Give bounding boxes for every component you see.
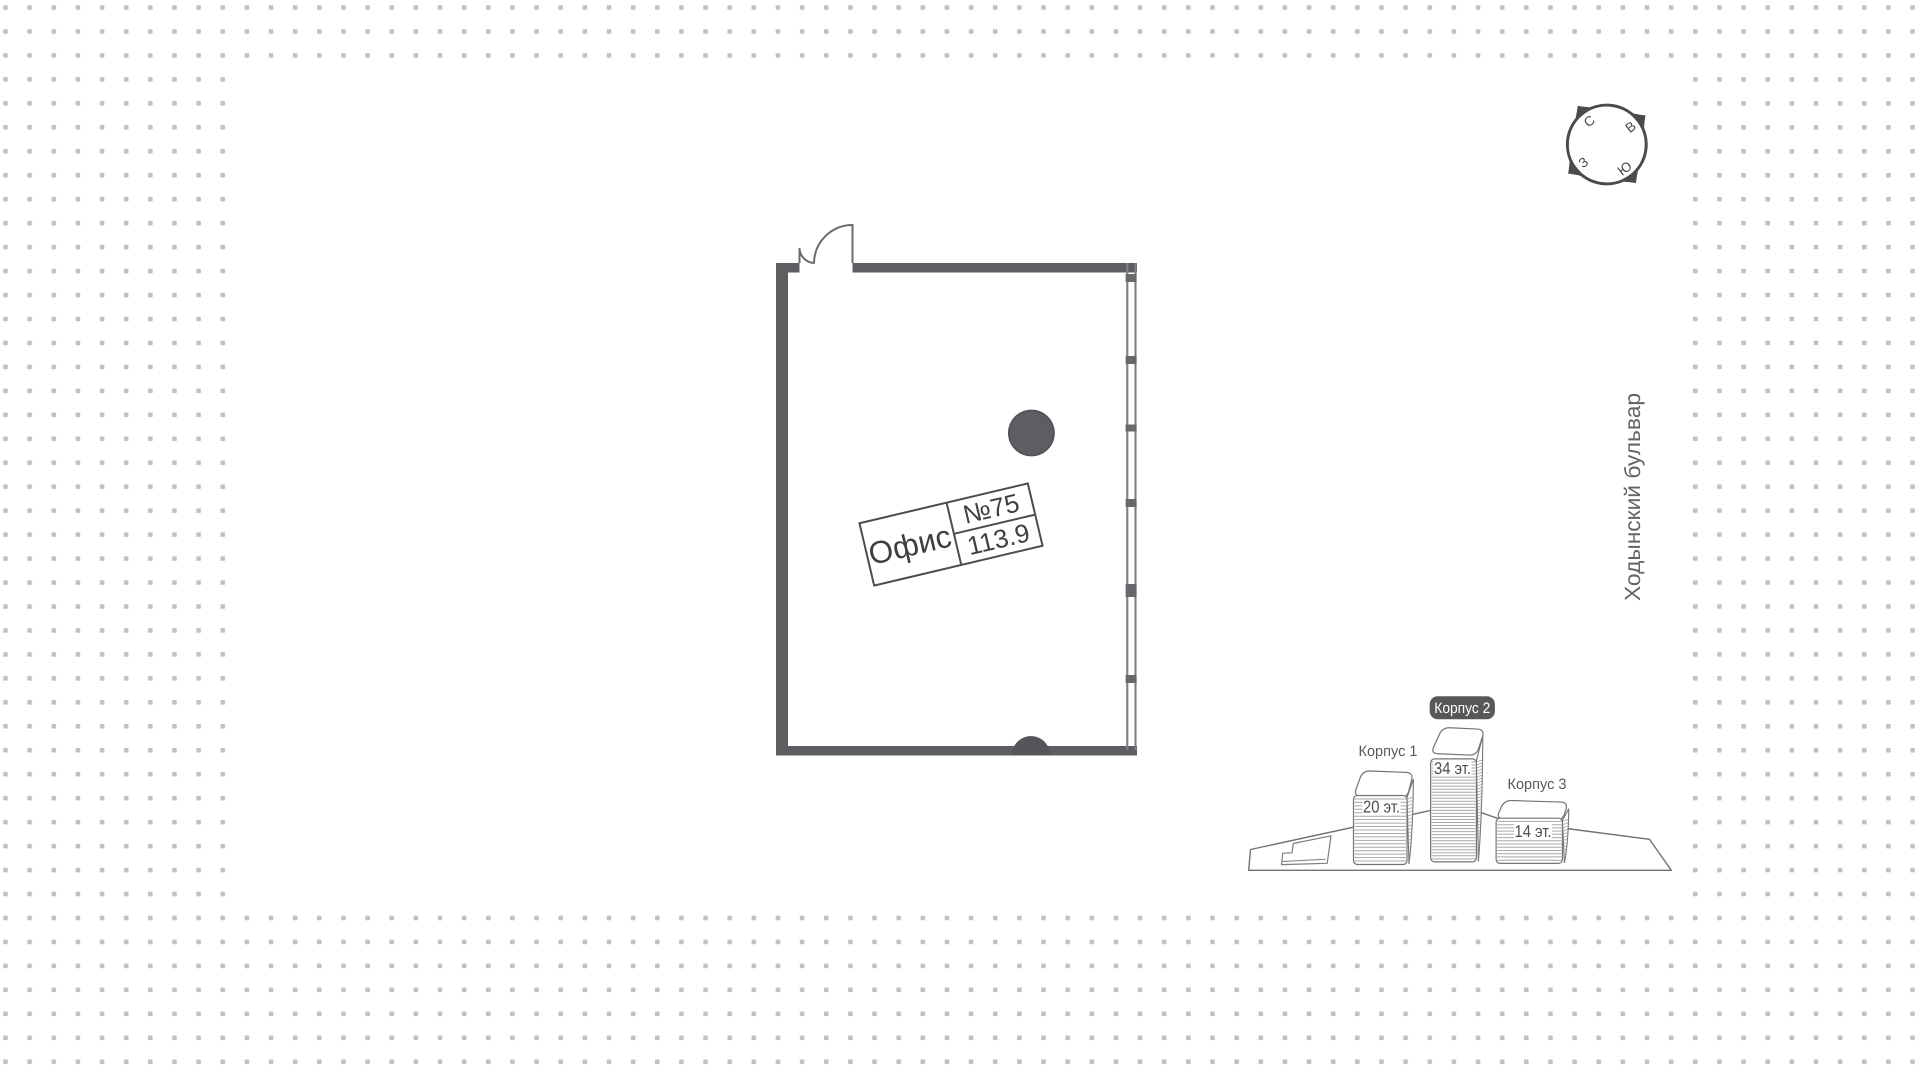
svg-text:20 эт.: 20 эт. [1363,797,1400,816]
svg-text:34 эт.: 34 эт. [1434,759,1471,778]
svg-text:Корпус 1: Корпус 1 [1359,743,1418,760]
svg-text:Ходынский бульвар: Ходынский бульвар [1620,393,1645,601]
svg-text:Корпус 3: Корпус 3 [1508,776,1567,793]
svg-text:14 эт.: 14 эт. [1515,822,1552,841]
svg-text:Корпус 2: Корпус 2 [1434,700,1490,717]
